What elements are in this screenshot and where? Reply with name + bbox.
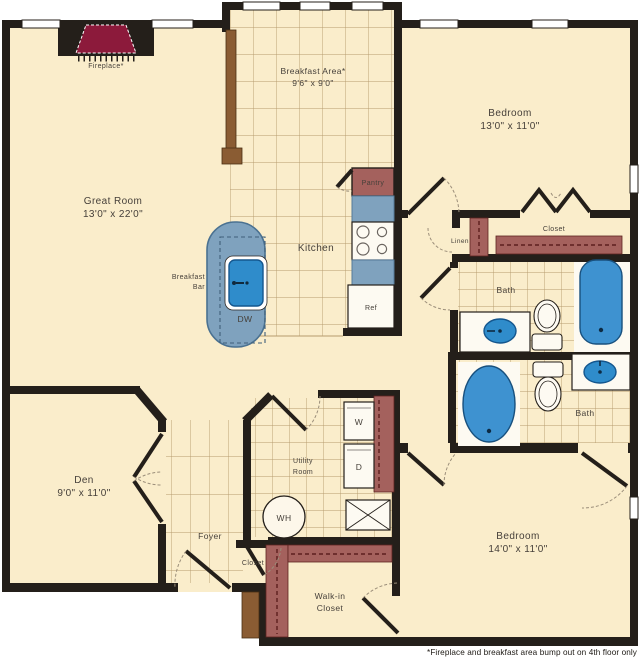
breakfast-wood-base [222,148,242,164]
kitchen-label: Kitchen [298,243,334,254]
window-great-room-2 [152,20,193,28]
window-breakfast-2 [300,2,330,10]
island-faucet [232,281,236,285]
utility-label-1: Utility [293,458,313,465]
counter-lower [352,260,394,285]
walkin-closet-label-2: Closet [317,603,344,613]
fireplace-firebox [76,25,136,53]
utility-sink [346,500,390,530]
entry-wood-jamb [242,592,259,638]
bedroom2-label: Bedroom [496,531,539,542]
closet-bedroom1-label: Closet [543,226,565,233]
breakfast-bar-island [207,222,267,347]
breakfast-bar-label-2: Bar [193,284,205,291]
bedroom2-dims: 14'0" x 11'0" [488,544,547,555]
washer-label: W [355,417,363,427]
dishwasher-label: DW [238,314,253,324]
breakfast-area-dims: 9'6" x 9'0" [292,78,334,88]
refrigerator-label: Ref [365,305,377,312]
footnote: *Fireplace and breakfast area bump out o… [427,648,638,657]
closet-foyer-label: Closet [242,560,264,567]
window-bedroom1-side [630,165,638,193]
floorplan-svg: Fireplace* Great Room 13'0" x 22'0" Brea… [0,0,641,658]
great-room-dims: 13'0" x 22'0" [83,209,143,220]
window-breakfast-3 [352,2,383,10]
dryer-label: D [356,462,363,472]
fireplace-label: Fireplace* [88,63,124,70]
breakfast-bar-label-1: Breakfast [172,274,205,281]
window-breakfast-1 [243,2,280,10]
window-great-room [22,20,60,28]
bath2-toilet [533,362,563,411]
floorplan: Fireplace* Great Room 13'0" x 22'0" Brea… [0,0,641,658]
utility-label-2: Room [293,469,313,476]
water-heater-label: WH [277,513,292,523]
linen-label: Linen [451,238,469,245]
bedroom1-dims: 13'0" x 11'0" [480,121,539,132]
bath1-tub-drain [599,328,603,332]
bath1-toilet [532,300,562,350]
den-dims: 9'0" x 11'0" [57,488,110,499]
window-bedroom1-2 [532,20,568,28]
window-bedroom1-1 [420,20,458,28]
bath2-label: Bath [575,408,594,418]
bath2-tub-drain [487,429,491,433]
bath1-label: Bath [496,285,515,295]
breakfast-area-label: Breakfast Area* [280,66,345,76]
counter-upper [352,196,394,222]
pantry-label: Pantry [362,180,385,187]
den-label: Den [74,475,94,486]
utility-shelf [374,396,394,492]
foyer-tile [166,420,243,583]
breakfast-wood-post [226,30,236,150]
bedroom1-label: Bedroom [488,108,531,119]
foyer-label: Foyer [198,531,222,541]
walkin-closet-label-1: Walk-in [315,591,346,601]
great-room-label: Great Room [84,196,142,207]
window-bedroom2-side [630,497,638,519]
